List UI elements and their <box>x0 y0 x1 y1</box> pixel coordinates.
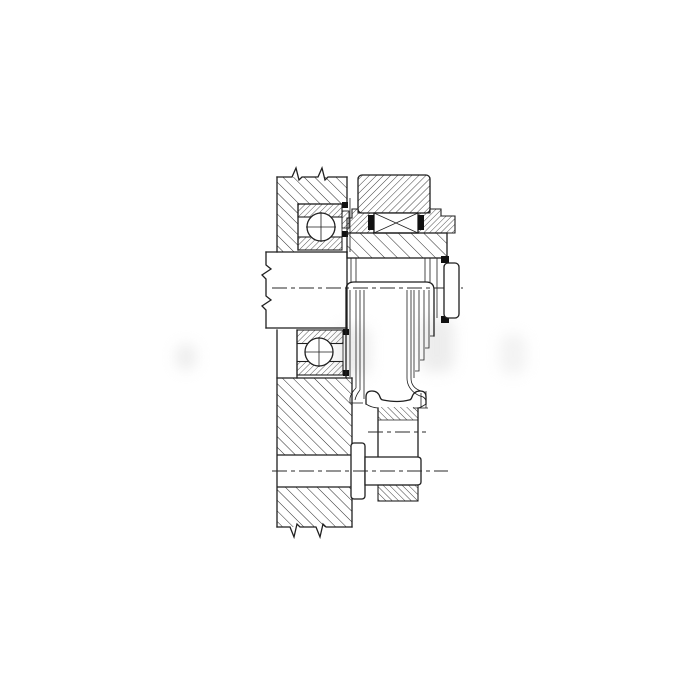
seal-ring <box>342 202 348 208</box>
release-cup <box>346 258 434 408</box>
seal-ring <box>418 215 424 230</box>
spool-waist <box>378 407 418 420</box>
end-cap <box>444 263 459 318</box>
seal-ring <box>441 256 449 263</box>
engineering-drawing <box>0 0 700 700</box>
spool-follower <box>366 391 426 457</box>
drive-shaft <box>262 252 463 330</box>
gear-ring <box>358 175 430 213</box>
lock-nut <box>378 485 418 501</box>
upper-ball-bearing <box>298 198 350 252</box>
roller-bearing <box>347 209 455 233</box>
drawing-canvas <box>0 0 700 700</box>
seal-ring <box>368 215 374 230</box>
lower-ball-bearing <box>297 329 349 376</box>
